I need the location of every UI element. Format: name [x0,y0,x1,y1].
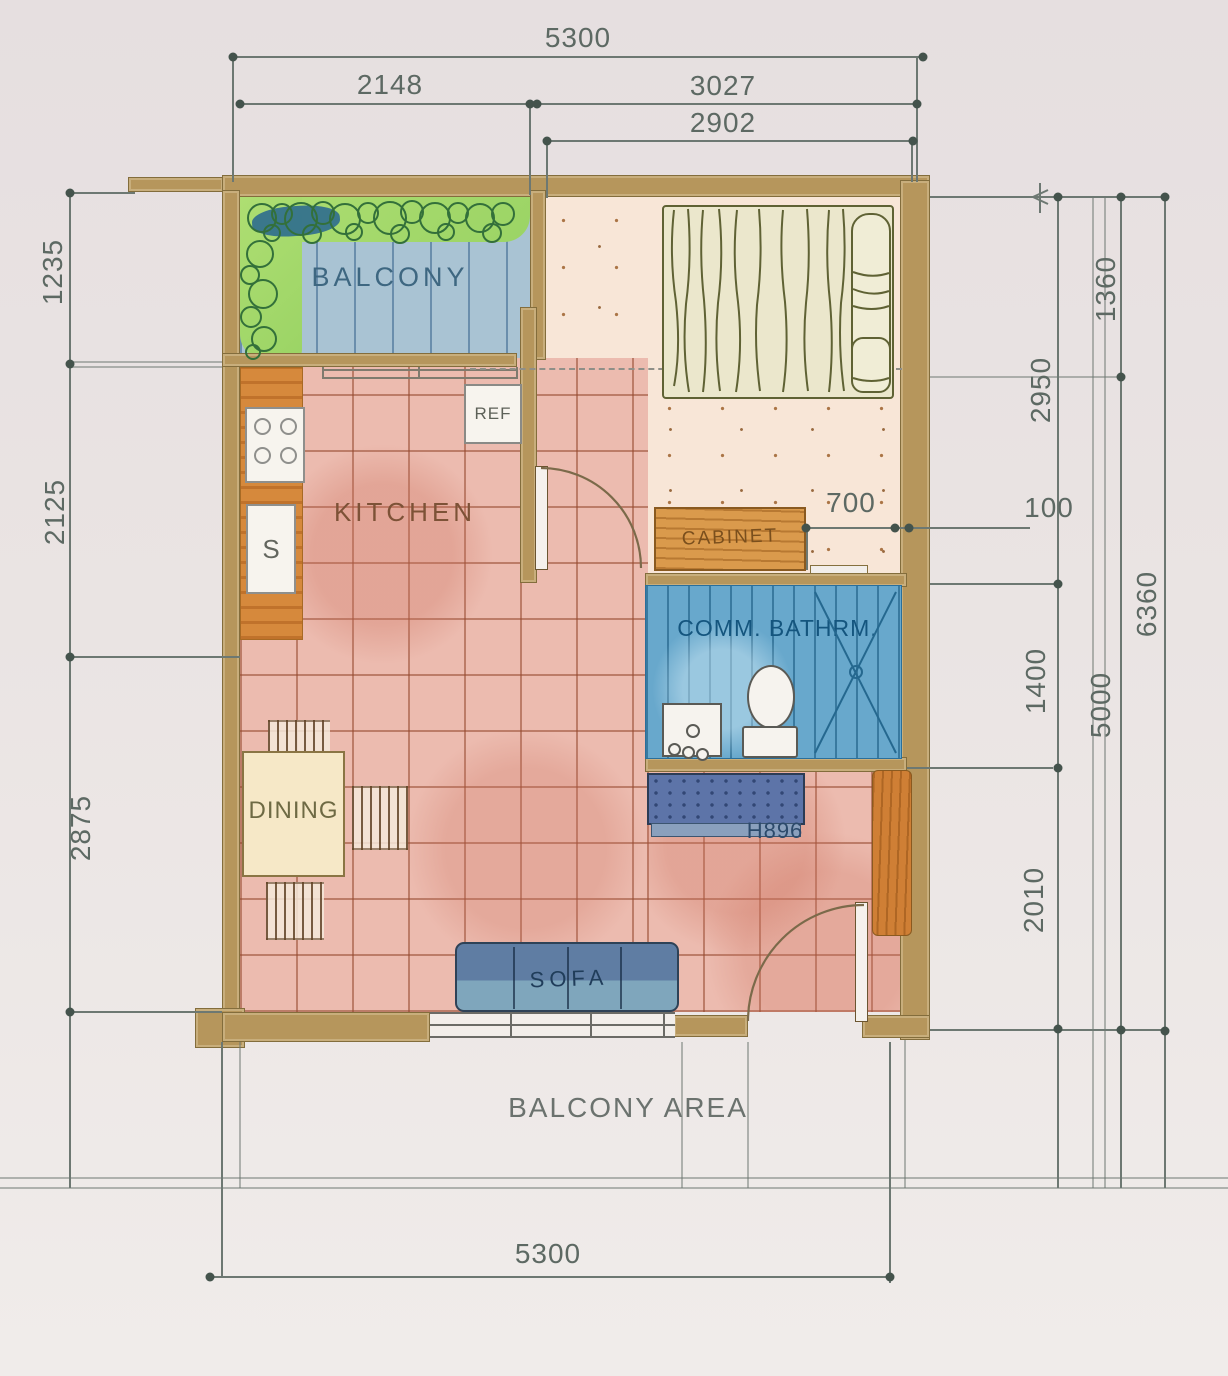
extension-line [232,56,234,182]
dim-dot [66,1008,75,1017]
dim-dot [66,189,75,198]
extension-line [806,528,808,570]
dim-dot [802,524,811,533]
dim-label-top-right: 3027 [653,70,793,102]
floor-plan-scan: S REF CABINET COMM. BATHRM. H896 DINING … [0,0,1228,1376]
dim-label-top-left: 2148 [320,69,460,101]
dim-label-right-upper: 1360 [1090,241,1122,337]
dim-dot [1054,193,1063,202]
dim-dot [1161,193,1170,202]
dim-line [210,1276,890,1278]
dim-dot [905,524,914,533]
extension-line [930,583,1058,585]
dim-label-right-living: 2010 [1018,852,1050,948]
dim-label-right-total: 6360 [1131,556,1163,652]
dim-label-top-inner: 2902 [653,107,793,139]
dim-line [806,527,1030,529]
dim-dot [206,1273,215,1282]
dim-dot [229,53,238,62]
extension-line [904,1040,906,1188]
extension-line [916,56,918,182]
dim-label-right-bedrm: 2950 [1025,342,1057,438]
dim-label-left-3: 2875 [65,780,97,876]
dim-line [547,140,913,142]
dim-dot [909,137,918,146]
extension-line [70,656,240,658]
extension-line [911,140,913,182]
dim-dot [66,360,75,369]
dim-line [1164,196,1166,1188]
dim-dot [543,137,552,146]
dim-dot [886,1273,895,1282]
dim-dot [533,100,542,109]
dim-label-wall-thickness: 100 [999,492,1099,524]
dim-line [233,56,923,58]
extension-line [930,196,1165,198]
extension-line [221,1042,223,1277]
dim-dot [891,524,900,533]
balcony-area-line [0,1177,1228,1179]
dim-line [240,103,917,105]
dim-dot [919,53,928,62]
extension-line [930,1029,1165,1031]
dim-dot [1117,373,1126,382]
dim-dot [1161,1027,1170,1036]
dim-dot [1117,1026,1126,1035]
dim-line [1120,196,1122,1188]
extension-line [70,366,222,368]
dim-dot [66,653,75,662]
dim-line [69,192,71,1188]
extension-line [529,103,531,195]
extension-line [239,1042,241,1188]
dim-label-top-total: 5300 [498,22,658,54]
dim-label-left-2: 2125 [39,464,71,560]
dim-label-right-lower: 5000 [1085,657,1117,753]
dim-line [1057,196,1059,1188]
extension-line [681,1042,683,1188]
extension-line [889,1042,891,1283]
dim-label-right-bath: 1400 [1020,633,1052,729]
extension-line [70,192,135,194]
extension-line [907,767,1053,769]
dim-dot [1117,193,1126,202]
balcony-area-line [0,1187,1228,1189]
extension-line [70,1011,222,1013]
dim-dot [236,100,245,109]
dim-label-bottom-total: 5300 [468,1238,628,1270]
dim-dot [1054,1025,1063,1034]
dim-label-cabinet-gap: 700 [801,487,901,519]
dim-dot [1054,580,1063,589]
dim-label-left-1: 1235 [37,224,69,320]
dim-dot [913,100,922,109]
extension-line [546,140,548,198]
extension-line [70,361,222,363]
extension-line [1039,183,1041,213]
dim-dot [1054,764,1063,773]
extension-line [747,1042,749,1188]
